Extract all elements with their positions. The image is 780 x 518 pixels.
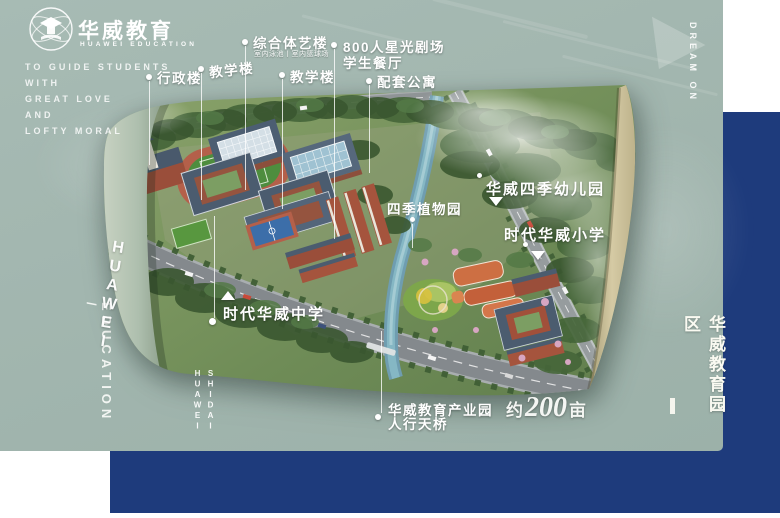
callout-dot	[279, 72, 285, 78]
leader-dot	[375, 414, 381, 420]
callout-leader-line	[282, 79, 283, 209]
leader-dot	[477, 173, 482, 178]
label-primary-school: 时代华威小学	[504, 224, 606, 245]
callout-leader-line	[201, 73, 202, 200]
area-prefix: 约	[506, 396, 523, 421]
label-kindergarten: 华威四季幼儿园	[486, 178, 605, 199]
callout-teaching-building-2: 教学楼	[290, 66, 335, 86]
leader-line	[214, 216, 215, 318]
area-unit: 亩	[569, 396, 586, 421]
triangle-down-icon	[489, 197, 503, 206]
slogan-line: AND	[25, 110, 170, 120]
callout-dot	[366, 78, 372, 84]
brand-name-en: HUAWEI EDUCATION	[80, 41, 197, 48]
callout-apartments: 配套公寓	[377, 71, 437, 91]
label-pedestrian-bridge: 人行天桥	[388, 413, 448, 433]
callout-arts-complex-sub: 室内泳池丨室内篮球场	[254, 49, 329, 59]
slogan-line: GREAT LOVE	[25, 94, 170, 104]
slogan-line: TO GUIDE STUDENTS	[25, 62, 170, 72]
slogan-line: WITH	[25, 78, 170, 88]
callout-dot	[242, 39, 248, 45]
area-size-label: 约 200 亩	[506, 392, 586, 424]
road-name-shidai-huawei: SHIDAI HUAWEI	[189, 369, 215, 431]
leader-line	[381, 331, 382, 413]
callout-dot	[198, 66, 204, 72]
road-name-col-shidai: SHIDAI	[206, 369, 215, 432]
callout-dot	[331, 42, 337, 48]
triangle-down-icon	[531, 251, 545, 260]
callout-canteen: 学生餐厅	[343, 52, 403, 72]
leader-line	[412, 224, 413, 248]
slogan-line: LOFTY MORAL	[25, 126, 170, 136]
callout-leader-line	[369, 85, 370, 173]
poster-canvas: { "colors": { "page_bg": "#ffffff", "tea…	[0, 0, 780, 513]
globe-education-emblem-icon	[26, 4, 76, 54]
callout-leader-line	[245, 46, 246, 190]
brand-logo	[26, 4, 76, 54]
area-number: 200	[525, 392, 567, 424]
leader-dot	[410, 217, 415, 222]
road-name-col-huawei: HUAWEI	[193, 369, 202, 432]
triangle-up-icon	[221, 291, 235, 300]
label-garden: 四季植物园	[387, 198, 462, 218]
leader-dot	[209, 318, 216, 325]
leader-dot	[523, 242, 528, 247]
brand-slogan: TO GUIDE STUDENTS WITH GREAT LOVE AND LO…	[25, 62, 170, 142]
label-middle-school: 时代华威中学	[223, 303, 325, 324]
